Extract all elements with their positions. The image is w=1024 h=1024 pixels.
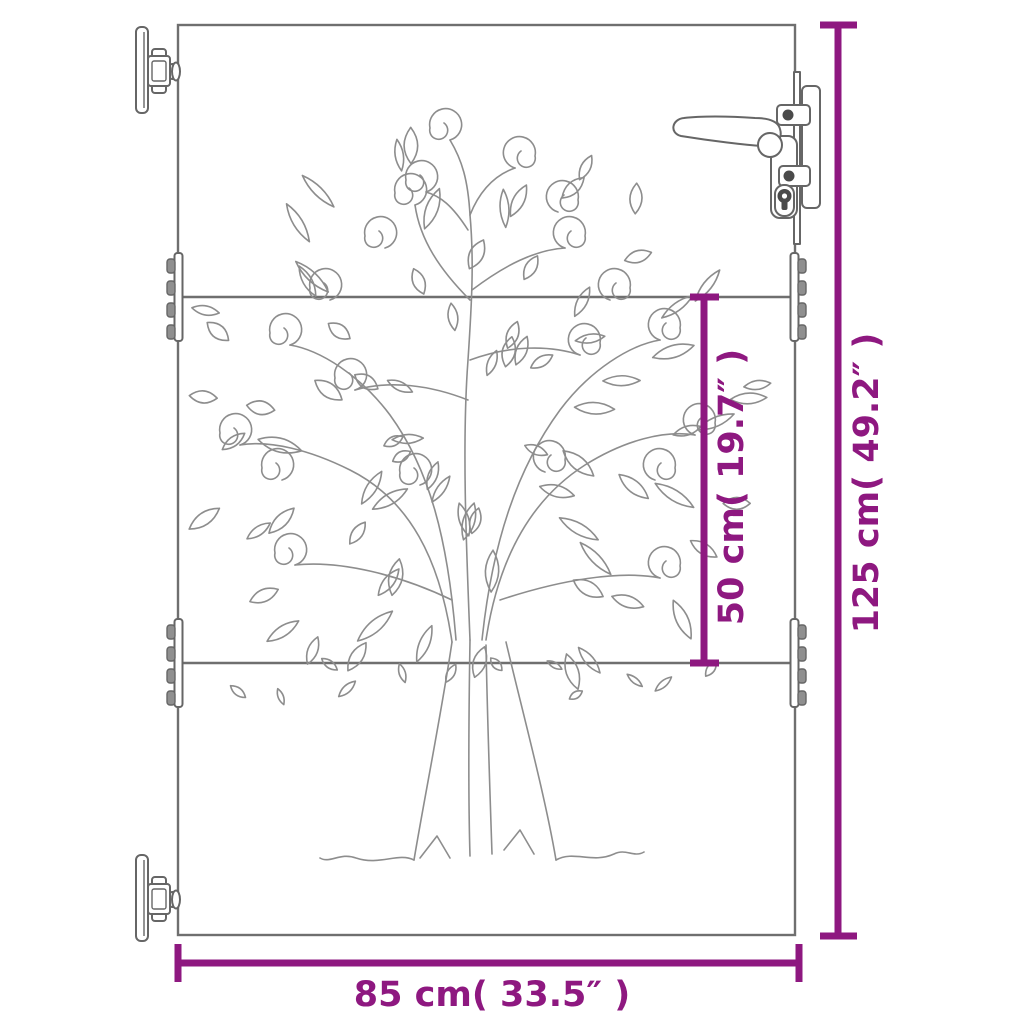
panel-joint-bracket-lower-left bbox=[167, 619, 183, 707]
section-height-label: 50 cm( 19.7″ ) bbox=[712, 349, 752, 625]
panel-joint-bracket-upper-left bbox=[167, 253, 183, 341]
clamp-screw-icon bbox=[784, 171, 795, 182]
lever-handle-with-lock-cylinder bbox=[673, 72, 820, 244]
gate-diagram-svg: 125 cm( 49.2″ ) 50 cm( 19.7″ ) 85 cm( 33… bbox=[0, 0, 1024, 1024]
panel-joint-bracket-upper-right bbox=[791, 253, 807, 341]
product-dimension-diagram: 125 cm( 49.2″ ) 50 cm( 19.7″ ) 85 cm( 33… bbox=[0, 0, 1024, 1024]
dimension-overall-width: 85 cm( 33.5″ ) bbox=[178, 944, 799, 1015]
overall-height-label: 125 cm( 49.2″ ) bbox=[847, 333, 887, 634]
hinge-wall-plate bbox=[136, 27, 148, 113]
tree-of-life-cutout bbox=[189, 109, 771, 861]
handle-boss bbox=[758, 133, 782, 157]
wall-mount-hinge-bottom bbox=[136, 855, 180, 941]
overall-width-label: 85 cm( 33.5″ ) bbox=[354, 975, 630, 1015]
wall-mount-hinge-top bbox=[136, 27, 180, 113]
panel-joint-bracket-lower-right bbox=[791, 619, 807, 707]
hinge-wall-plate bbox=[136, 855, 148, 941]
clamp-screw-icon bbox=[783, 110, 794, 121]
keyhole-icon bbox=[782, 193, 787, 198]
dimension-section-height: 50 cm( 19.7″ ) bbox=[690, 297, 752, 663]
dimension-overall-height: 125 cm( 49.2″ ) bbox=[820, 25, 887, 936]
